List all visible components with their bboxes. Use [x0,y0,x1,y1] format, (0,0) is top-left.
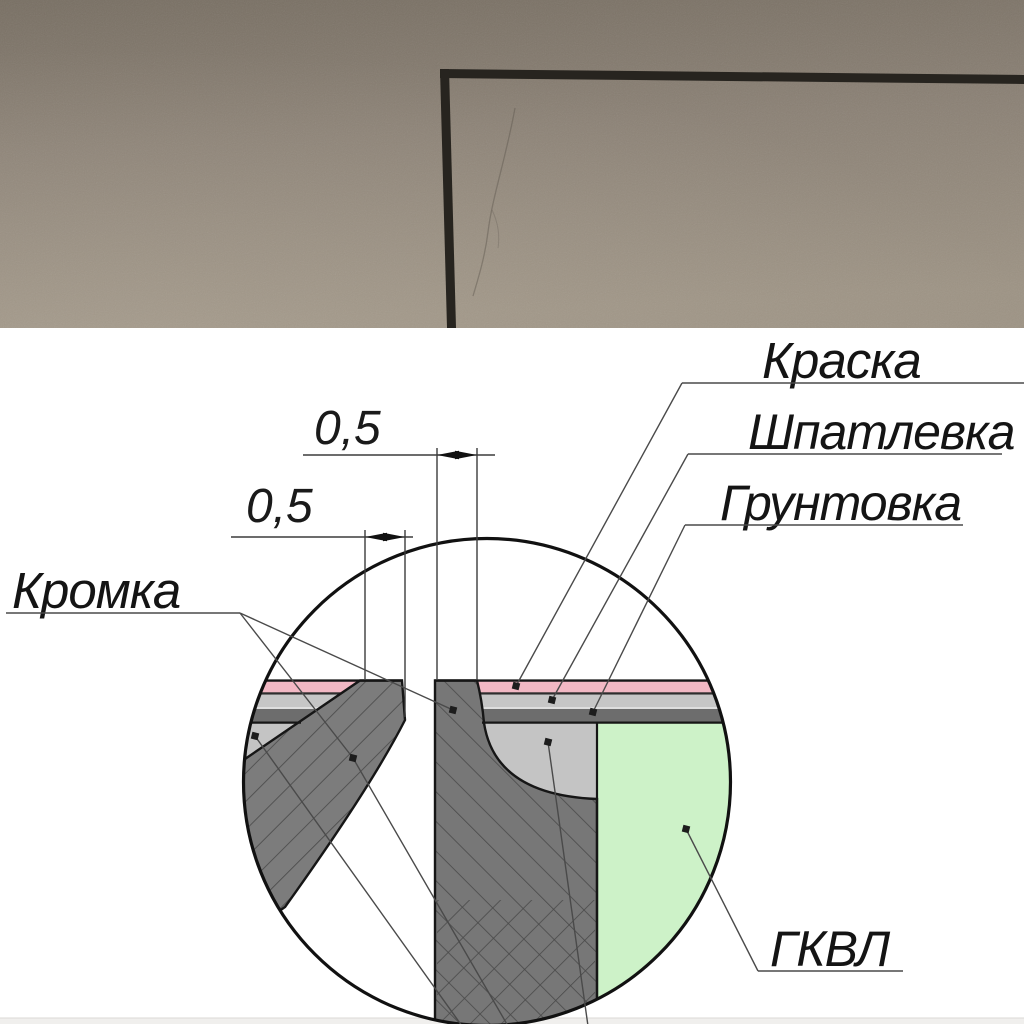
callout-edge-label: Кромка [12,562,180,619]
paint-underside-line-right [460,692,750,694]
callout-board-label: ГКВЛ [770,921,891,977]
screenshot-root: 0,5 0,5 Краска Шпатлевка Грунтовка [0,0,1024,1024]
dimension-value-bottom: 0,5 [246,480,313,533]
edge-core-crosshatch [437,900,595,1024]
dimension-value-top: 0,5 [314,402,381,455]
ceiling-photo [0,0,1024,328]
layer-divider-right [460,707,750,709]
callout-primer-label: Грунтовка [720,475,961,531]
putty-layer-right [460,695,750,707]
photo-grain [0,0,1024,328]
drawing-canvas: 0,5 0,5 Краска Шпатлевка Грунтовка [0,0,1024,1024]
callout-putty-label: Шпатлевка [748,404,1015,460]
primer-layer-right [460,709,750,723]
callout-paint-label: Краска [762,332,921,389]
